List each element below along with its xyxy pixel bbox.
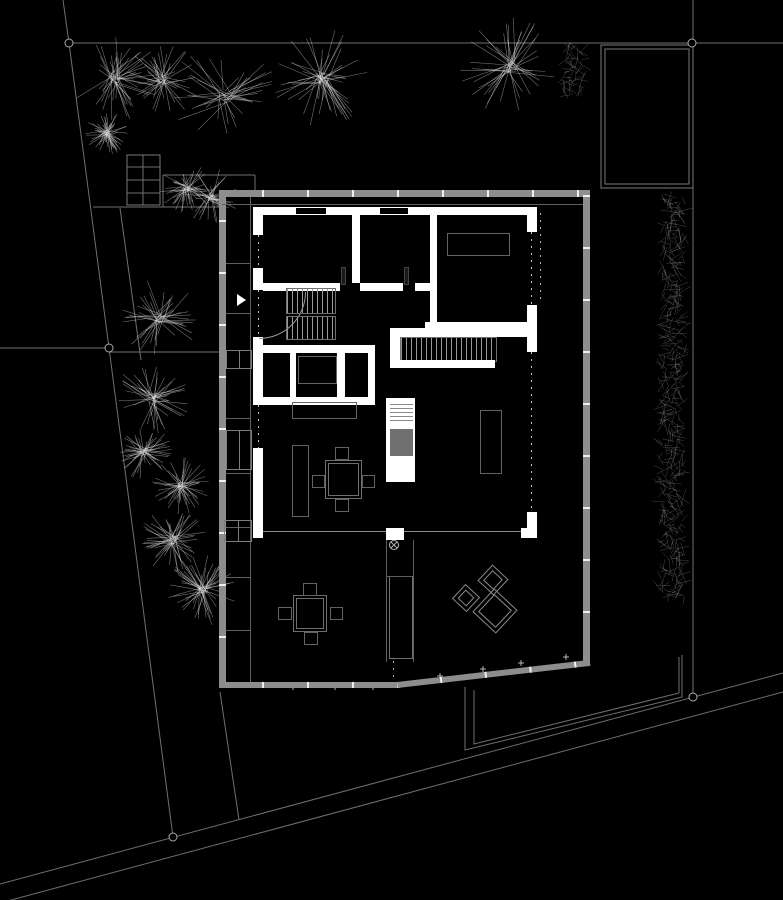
wall-room-divider-ab — [352, 215, 360, 283]
dining-chair-w — [312, 475, 325, 488]
dining-chair-n — [335, 447, 349, 460]
site-plan-canvas — [0, 0, 783, 900]
ramp-top-line — [386, 576, 414, 577]
cabinet-outline — [480, 410, 502, 474]
terrace-chair-e — [330, 607, 343, 620]
deck-band-east — [583, 190, 590, 663]
dining-chair-s — [335, 499, 349, 512]
dining-chair-e — [362, 475, 375, 488]
wall-east-pier-2 — [527, 305, 537, 352]
planter-3 — [224, 520, 252, 542]
deck-edge-line-north — [222, 204, 583, 205]
terrace-table — [293, 595, 327, 632]
entry-stair-flight-upper — [286, 288, 336, 314]
bedroom-desk-outline — [447, 233, 510, 256]
pergola-joint — [226, 577, 250, 578]
ramp-inner-outline — [389, 576, 413, 659]
window-west-1 — [253, 235, 263, 268]
pergola-joint — [226, 473, 250, 474]
door-leaf-room-b — [404, 267, 409, 285]
ramp-dotted-line — [393, 661, 394, 681]
entry-stair-flight-lower — [286, 316, 336, 340]
terrace-chair-s — [304, 632, 318, 645]
planter-2 — [226, 430, 252, 470]
wall-east-pier-3 — [527, 512, 537, 528]
dining-table — [325, 460, 362, 499]
core-stair-hatch — [390, 403, 413, 421]
door-leaf-room-a — [341, 267, 346, 285]
entrance-arrow-icon — [237, 294, 246, 306]
elevator-cab — [390, 429, 413, 456]
wall-west-2 — [253, 268, 263, 290]
wall-bath-north — [253, 345, 375, 353]
terrace-chair-n — [303, 583, 317, 596]
deck-band-north — [219, 190, 590, 197]
kitchen-counter-outline — [292, 402, 357, 419]
glazing-east-upper — [527, 232, 535, 305]
deck-band-south — [219, 682, 400, 688]
glazing-east-lower — [527, 352, 535, 512]
wall-bath-divider — [290, 353, 296, 397]
wall-corridor-b — [360, 283, 403, 291]
wall-above-stair — [390, 328, 527, 337]
wall-stair-south — [395, 360, 495, 368]
wall-bath-divider-2 — [337, 353, 345, 397]
pergola-joint — [226, 418, 250, 419]
shower-outline — [298, 356, 337, 384]
ramp-line-west — [386, 540, 387, 662]
wall-west-1 — [253, 207, 263, 235]
window-north-2 — [380, 208, 408, 214]
window-west-2 — [253, 405, 263, 448]
wall-room-divider-bc — [430, 215, 437, 322]
pergola-joint — [226, 263, 250, 264]
south-threshold-pier — [386, 528, 404, 540]
planter-1 — [226, 350, 252, 369]
wall-corridor-stub — [415, 283, 430, 291]
sideboard-outline — [292, 445, 309, 517]
terrace-chair-w — [278, 607, 292, 620]
main-stair — [400, 337, 497, 362]
ramp-line-east — [413, 540, 414, 662]
wall-bath-east — [368, 345, 375, 405]
wall-south-pier-east — [521, 528, 537, 538]
wall-west-4 — [253, 448, 263, 538]
deck-dotted-line-east — [540, 213, 541, 300]
window-north-1 — [296, 208, 326, 214]
wall-east-pier-1 — [527, 207, 537, 232]
pergola-joint — [226, 313, 250, 314]
deck-band-west — [219, 190, 226, 688]
pergola-joint — [226, 630, 250, 631]
